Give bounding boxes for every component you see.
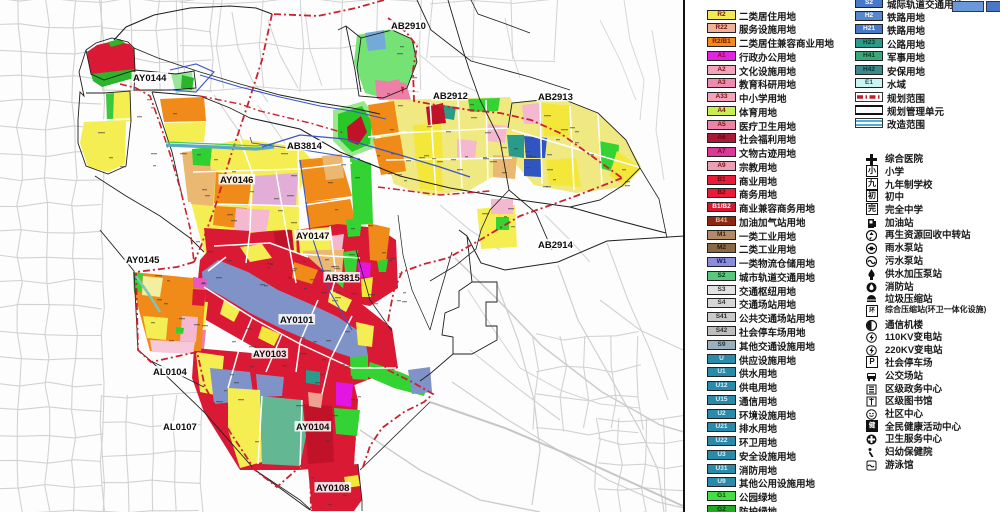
svg-text:AB2912: AB2912 [433,91,468,102]
svg-text:AY0108: AY0108 [316,483,349,494]
svg-text:AY0146: AY0146 [220,175,253,186]
svg-text:AB2910: AB2910 [391,21,426,32]
svg-text:AL0104: AL0104 [153,367,188,378]
svg-text:AB2913: AB2913 [538,92,573,103]
svg-text:AB3815: AB3815 [325,273,361,284]
svg-text:AY0104: AY0104 [296,422,330,433]
svg-text:AY0103: AY0103 [253,349,286,360]
svg-text:AB2914: AB2914 [538,240,574,251]
svg-text:AB3814: AB3814 [287,141,323,152]
svg-text:AY0101: AY0101 [280,315,314,326]
svg-text:AL0107: AL0107 [163,422,197,433]
svg-text:AY0147: AY0147 [296,231,329,242]
svg-text:AY0144: AY0144 [133,73,167,84]
svg-text:AY0145: AY0145 [126,255,160,266]
